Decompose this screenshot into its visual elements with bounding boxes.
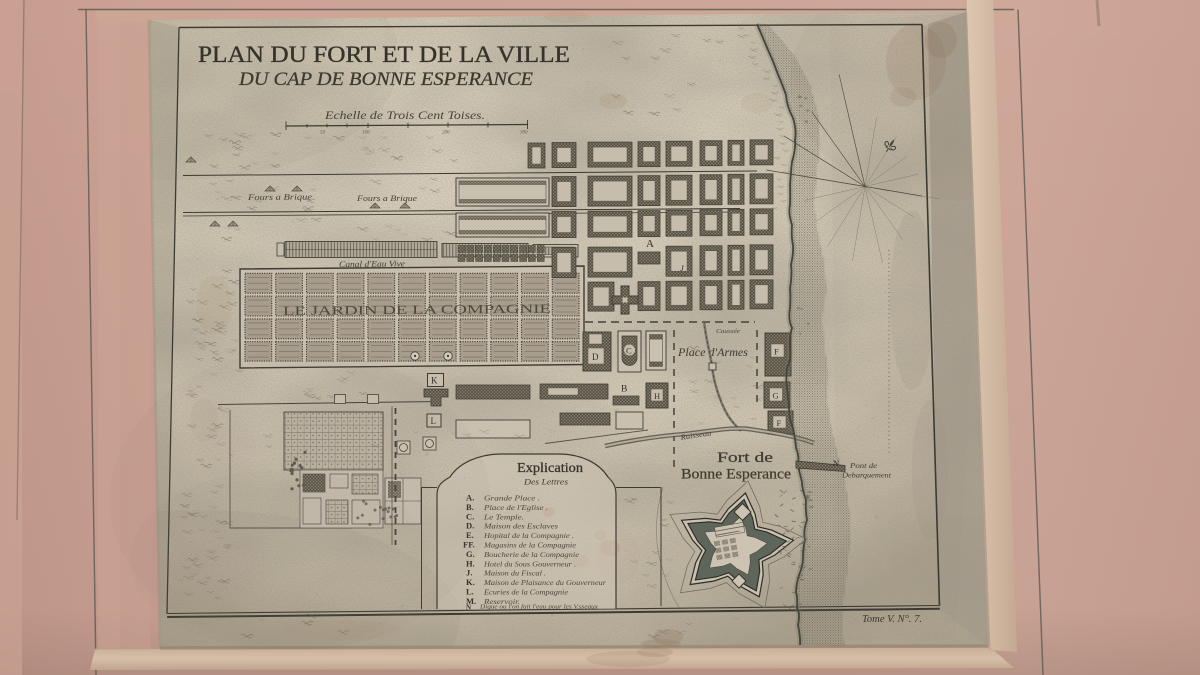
svg-text:Caussée: Caussée (716, 329, 740, 335)
svg-text:B: B (621, 385, 627, 395)
svg-text:Fours a Brique: Fours a Brique (247, 191, 313, 202)
svg-text:H: H (654, 391, 660, 401)
svg-text:Grande Place .: Grande Place . (484, 494, 540, 503)
svg-text:200: 200 (442, 131, 450, 136)
svg-text:Place d'Armes: Place d'Armes (677, 347, 749, 359)
svg-text:Boucherie de la Compagnie: Boucherie de la Compagnie (484, 550, 580, 559)
svg-text:F: F (774, 347, 779, 357)
svg-text:Maison de Plaisance du Gouvern: Maison de Plaisance du Gouverneur (483, 578, 606, 587)
svg-text:DU CAP DE BONNE ESPERANCE: DU CAP DE BONNE ESPERANCE (238, 69, 533, 90)
svg-text:300: 300 (520, 131, 528, 136)
svg-text:Magasins de la Compagnie: Magasins de la Compagnie (483, 541, 577, 550)
svg-text:PLAN DU FORT ET DE LA VILLE: PLAN DU FORT ET DE LA VILLE (198, 42, 570, 67)
svg-text:Fours a Brique: Fours a Brique (356, 193, 417, 203)
svg-text:Echelle de Trois Cent Toises.: Echelle de Trois Cent Toises. (324, 110, 485, 122)
svg-text:Pont de: Pont de (849, 462, 877, 470)
svg-text:Debarquement: Debarquement (841, 472, 892, 480)
svg-text:Explication: Explication (517, 460, 583, 475)
svg-text:LE JARDIN DE LA COMPAGNIE: LE JARDIN DE LA COMPAGNIE (283, 302, 552, 318)
svg-text:C: C (626, 346, 632, 356)
svg-text:Hotel du Sous Gouverneur .: Hotel du Sous Gouverneur . (483, 559, 576, 568)
svg-text:G: G (773, 391, 779, 401)
svg-text:Maison des Esclaves: Maison des Esclaves (483, 522, 558, 531)
svg-text:K: K (431, 376, 438, 386)
svg-text:Tome V. N°. 7.: Tome V. N°. 7. (862, 614, 922, 625)
svg-text:N: N (466, 604, 471, 612)
svg-text:Digue ou l'on fait l'eau pour: Digue ou l'on fait l'eau pour les V.ssea… (479, 604, 599, 611)
svg-text:100: 100 (362, 131, 370, 136)
svg-text:A: A (646, 238, 654, 250)
svg-text:Maison du Fiscal .: Maison du Fiscal . (483, 569, 546, 578)
svg-text:F: F (777, 418, 782, 428)
svg-text:D: D (592, 352, 599, 362)
svg-text:Fort de: Fort de (717, 450, 773, 466)
svg-text:Ecuries de la Compagnie: Ecuries de la Compagnie (483, 588, 569, 597)
svg-text:Bonne Esperance: Bonne Esperance (681, 467, 791, 483)
svg-text:Des Lettres: Des Lettres (523, 478, 568, 487)
svg-text:50: 50 (320, 131, 326, 136)
svg-text:N: N (833, 458, 839, 468)
svg-text:Place de l'Eglise .: Place de l'Eglise . (483, 503, 548, 512)
svg-text:Hopital de la Compagnie .: Hopital de la Compagnie . (483, 531, 574, 540)
